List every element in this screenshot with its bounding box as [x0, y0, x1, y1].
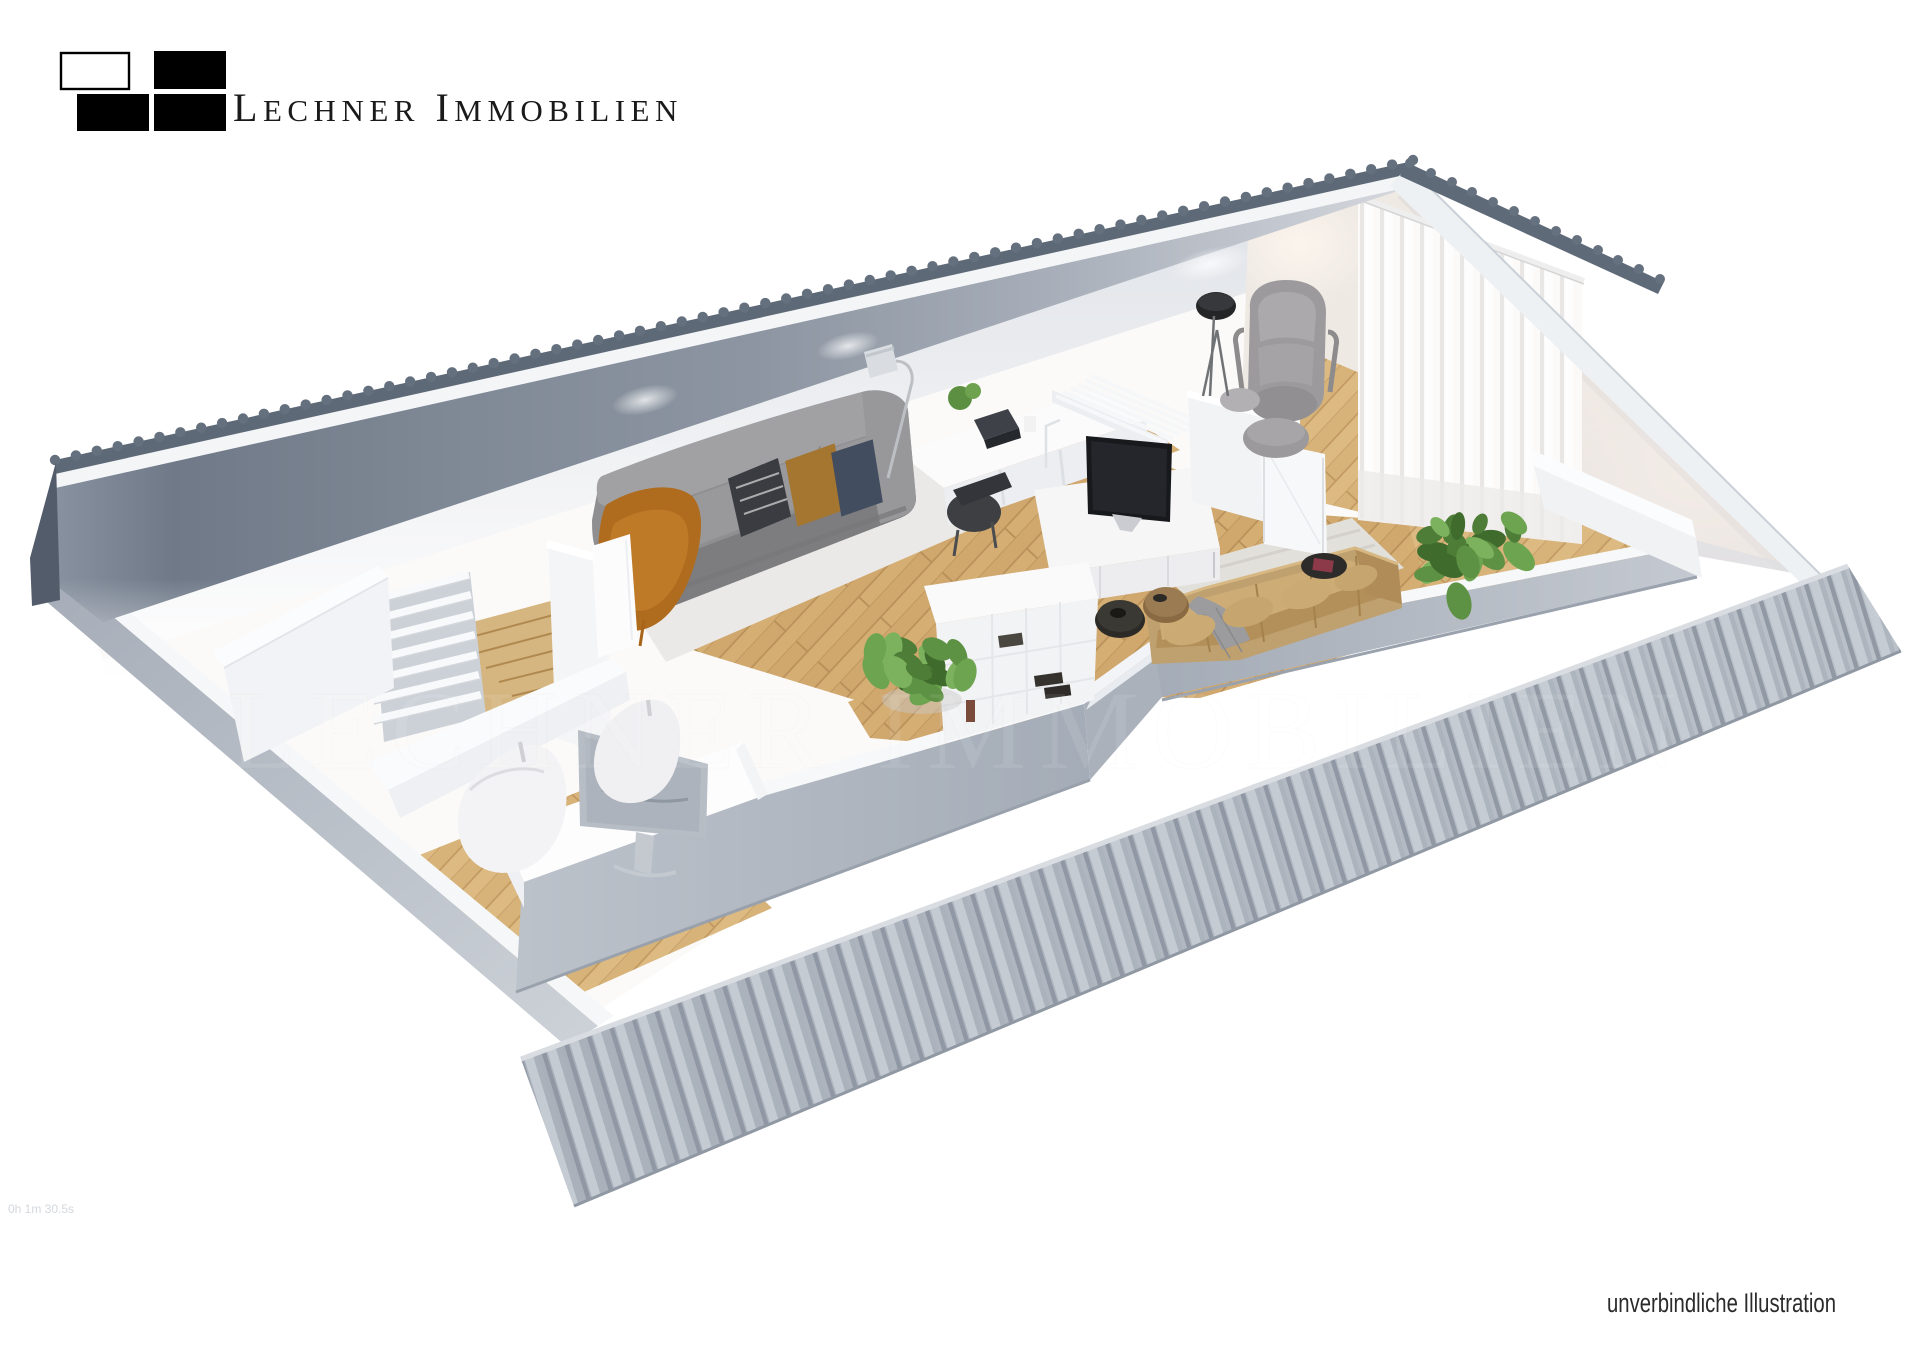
svg-text:LECHNER IMMOBILIEN: LECHNER IMMOBILIEN — [228, 669, 1691, 793]
svg-text:unverbindliche Illustration: unverbindliche Illustration — [1607, 1288, 1836, 1318]
svg-text:0h 1m 30.5s: 0h 1m 30.5s — [8, 1202, 74, 1216]
